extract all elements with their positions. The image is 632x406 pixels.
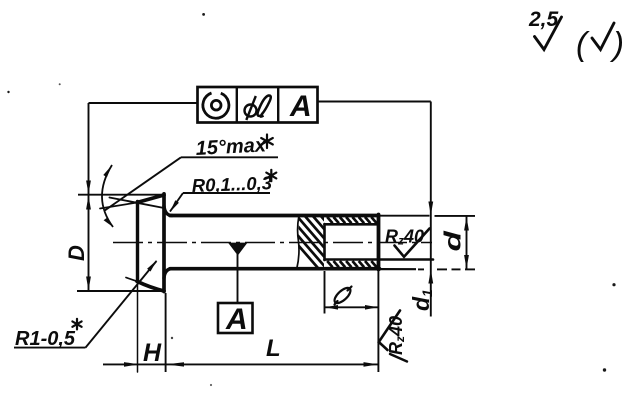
svg-text:A: A	[225, 303, 248, 336]
svg-text:d: d	[440, 231, 466, 252]
svg-text:R1-0,5: R1-0,5	[15, 328, 76, 350]
svg-text:Rz40: Rz40	[385, 227, 424, 248]
svg-text:D: D	[64, 245, 89, 261]
svg-text:R0,1...0,3: R0,1...0,3	[191, 172, 273, 196]
svg-text:Rz40: Rz40	[386, 316, 407, 355]
svg-text:H: H	[143, 339, 162, 367]
svg-text:2,5: 2,5	[528, 8, 559, 31]
svg-text:A: A	[289, 90, 312, 123]
svg-text:15°max: 15°max	[195, 134, 267, 160]
svg-text:L: L	[266, 335, 281, 362]
